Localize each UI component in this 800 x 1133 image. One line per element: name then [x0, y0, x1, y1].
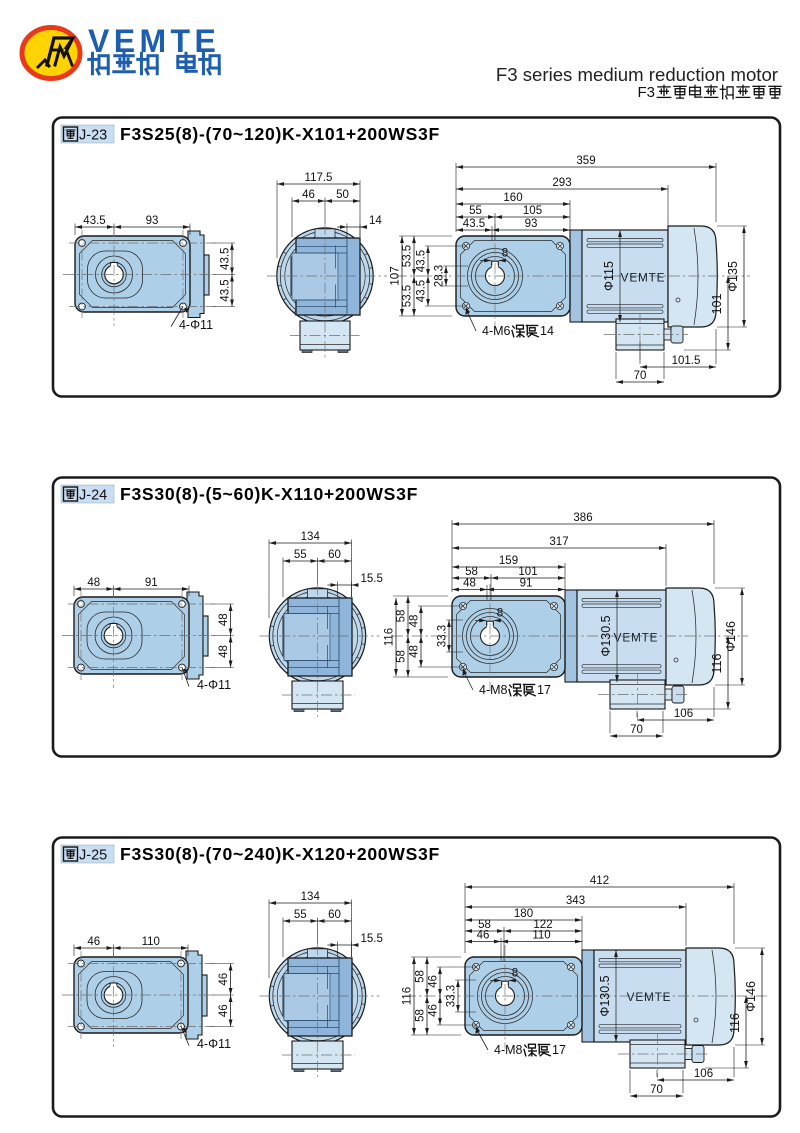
svg-text:116: 116 — [728, 1013, 742, 1033]
svg-text:F3S30(8)-(70~240)K-X120+200WS3: F3S30(8)-(70~240)K-X120+200WS3F — [120, 844, 440, 864]
svg-text:317: 317 — [549, 536, 568, 548]
svg-text:293: 293 — [552, 177, 571, 189]
svg-text:70: 70 — [634, 370, 647, 382]
svg-text:412: 412 — [590, 875, 609, 887]
svg-text:43.5: 43.5 — [220, 279, 232, 301]
svg-text:116: 116 — [384, 628, 396, 646]
svg-text:107: 107 — [390, 266, 402, 285]
svg-text:101.5: 101.5 — [672, 355, 701, 367]
svg-text:106: 106 — [674, 708, 693, 720]
svg-text:VEMTE: VEMTE — [621, 271, 666, 285]
svg-text:28.3: 28.3 — [434, 265, 446, 287]
svg-text:46: 46 — [428, 1004, 440, 1017]
svg-text:F3S25(8)-(70~120)K-X101+200WS3: F3S25(8)-(70~120)K-X101+200WS3F — [120, 124, 440, 144]
svg-text:J-25: J-25 — [79, 848, 107, 864]
svg-text:4-Φ11: 4-Φ11 — [197, 678, 231, 692]
svg-text:116: 116 — [402, 987, 414, 1005]
svg-text:53.5: 53.5 — [402, 245, 414, 267]
svg-text:359: 359 — [576, 155, 595, 167]
svg-text:48: 48 — [409, 645, 421, 658]
svg-text:43.5: 43.5 — [416, 250, 428, 272]
svg-text:91: 91 — [145, 577, 158, 589]
svg-text:33.3: 33.3 — [437, 625, 449, 647]
svg-text:58: 58 — [396, 650, 408, 663]
svg-text:93: 93 — [146, 215, 159, 227]
svg-text:VEMTE: VEMTE — [627, 990, 672, 1004]
svg-text:101: 101 — [710, 294, 724, 315]
svg-text:70: 70 — [650, 1084, 663, 1096]
svg-text:48: 48 — [218, 645, 230, 658]
svg-text:15.5: 15.5 — [361, 573, 383, 585]
svg-text:4-M8: 4-M8 — [479, 683, 508, 697]
svg-text:134: 134 — [301, 531, 321, 543]
svg-text:58: 58 — [415, 1009, 427, 1022]
svg-text:4-M8: 4-M8 — [494, 1043, 523, 1057]
svg-text:14: 14 — [540, 324, 554, 338]
svg-text:343: 343 — [566, 895, 585, 907]
svg-text:8: 8 — [497, 608, 503, 620]
svg-text:48: 48 — [87, 577, 100, 589]
svg-text:60: 60 — [328, 549, 341, 561]
svg-text:43.5: 43.5 — [83, 215, 105, 227]
svg-text:43.5: 43.5 — [416, 280, 428, 302]
svg-text:159: 159 — [499, 555, 518, 567]
svg-text:46: 46 — [428, 975, 440, 988]
svg-text:91: 91 — [520, 577, 533, 589]
svg-text:386: 386 — [573, 512, 592, 524]
svg-text:46: 46 — [302, 189, 315, 201]
svg-text:4-Φ11: 4-Φ11 — [197, 1037, 231, 1051]
svg-text:F3 series medium reduction mot: F3 series medium reduction motor — [496, 64, 778, 85]
svg-text:J-24: J-24 — [79, 488, 107, 504]
svg-text:Φ115: Φ115 — [602, 261, 616, 291]
svg-text:F3: F3 — [637, 84, 655, 101]
svg-text:46: 46 — [477, 929, 490, 941]
svg-text:Φ146: Φ146 — [724, 621, 738, 652]
svg-text:46: 46 — [218, 973, 230, 986]
svg-text:55: 55 — [294, 549, 307, 561]
svg-text:17: 17 — [552, 1043, 566, 1057]
svg-text:110: 110 — [532, 929, 550, 941]
svg-text:14: 14 — [369, 215, 382, 227]
svg-text:VEMTE: VEMTE — [88, 23, 220, 59]
svg-text:93: 93 — [525, 218, 538, 230]
svg-text:4-M6: 4-M6 — [482, 324, 511, 338]
svg-text:160: 160 — [503, 192, 522, 204]
svg-text:58: 58 — [465, 566, 478, 578]
svg-text:117.5: 117.5 — [305, 172, 333, 184]
svg-text:Φ130.5: Φ130.5 — [598, 975, 612, 1016]
svg-text:60: 60 — [328, 909, 341, 921]
svg-text:134: 134 — [301, 891, 321, 903]
svg-text:VEMTE: VEMTE — [614, 631, 659, 645]
svg-text:46: 46 — [87, 936, 100, 948]
svg-text:43.5: 43.5 — [220, 248, 232, 270]
svg-text:101: 101 — [518, 566, 537, 578]
svg-text:43.5: 43.5 — [463, 218, 485, 230]
svg-text:4-Φ11: 4-Φ11 — [179, 318, 213, 332]
svg-text:180: 180 — [514, 908, 533, 920]
svg-text:58: 58 — [415, 970, 427, 983]
svg-text:116: 116 — [710, 653, 724, 673]
svg-text:106: 106 — [694, 1068, 713, 1080]
svg-text:8: 8 — [502, 248, 508, 260]
svg-text:17: 17 — [537, 683, 551, 697]
svg-text:46: 46 — [218, 1004, 230, 1017]
svg-text:48: 48 — [409, 615, 421, 628]
svg-text:48: 48 — [218, 613, 230, 626]
svg-text:F3S30(8)-(5~60)K-X110+200WS3F: F3S30(8)-(5~60)K-X110+200WS3F — [120, 484, 418, 504]
svg-text:8: 8 — [512, 968, 518, 980]
svg-text:58: 58 — [396, 610, 408, 623]
svg-text:Φ130.5: Φ130.5 — [599, 615, 613, 656]
svg-text:70: 70 — [630, 724, 643, 736]
svg-text:J-23: J-23 — [79, 128, 107, 144]
svg-text:53.5: 53.5 — [402, 285, 414, 307]
svg-text:55: 55 — [294, 909, 307, 921]
svg-text:105: 105 — [523, 205, 542, 217]
svg-text:55: 55 — [469, 205, 482, 217]
svg-text:15.5: 15.5 — [361, 933, 383, 945]
svg-text:50: 50 — [336, 189, 349, 201]
svg-text:110: 110 — [142, 936, 160, 948]
svg-text:48: 48 — [463, 577, 476, 589]
svg-text:33.3: 33.3 — [446, 985, 458, 1007]
